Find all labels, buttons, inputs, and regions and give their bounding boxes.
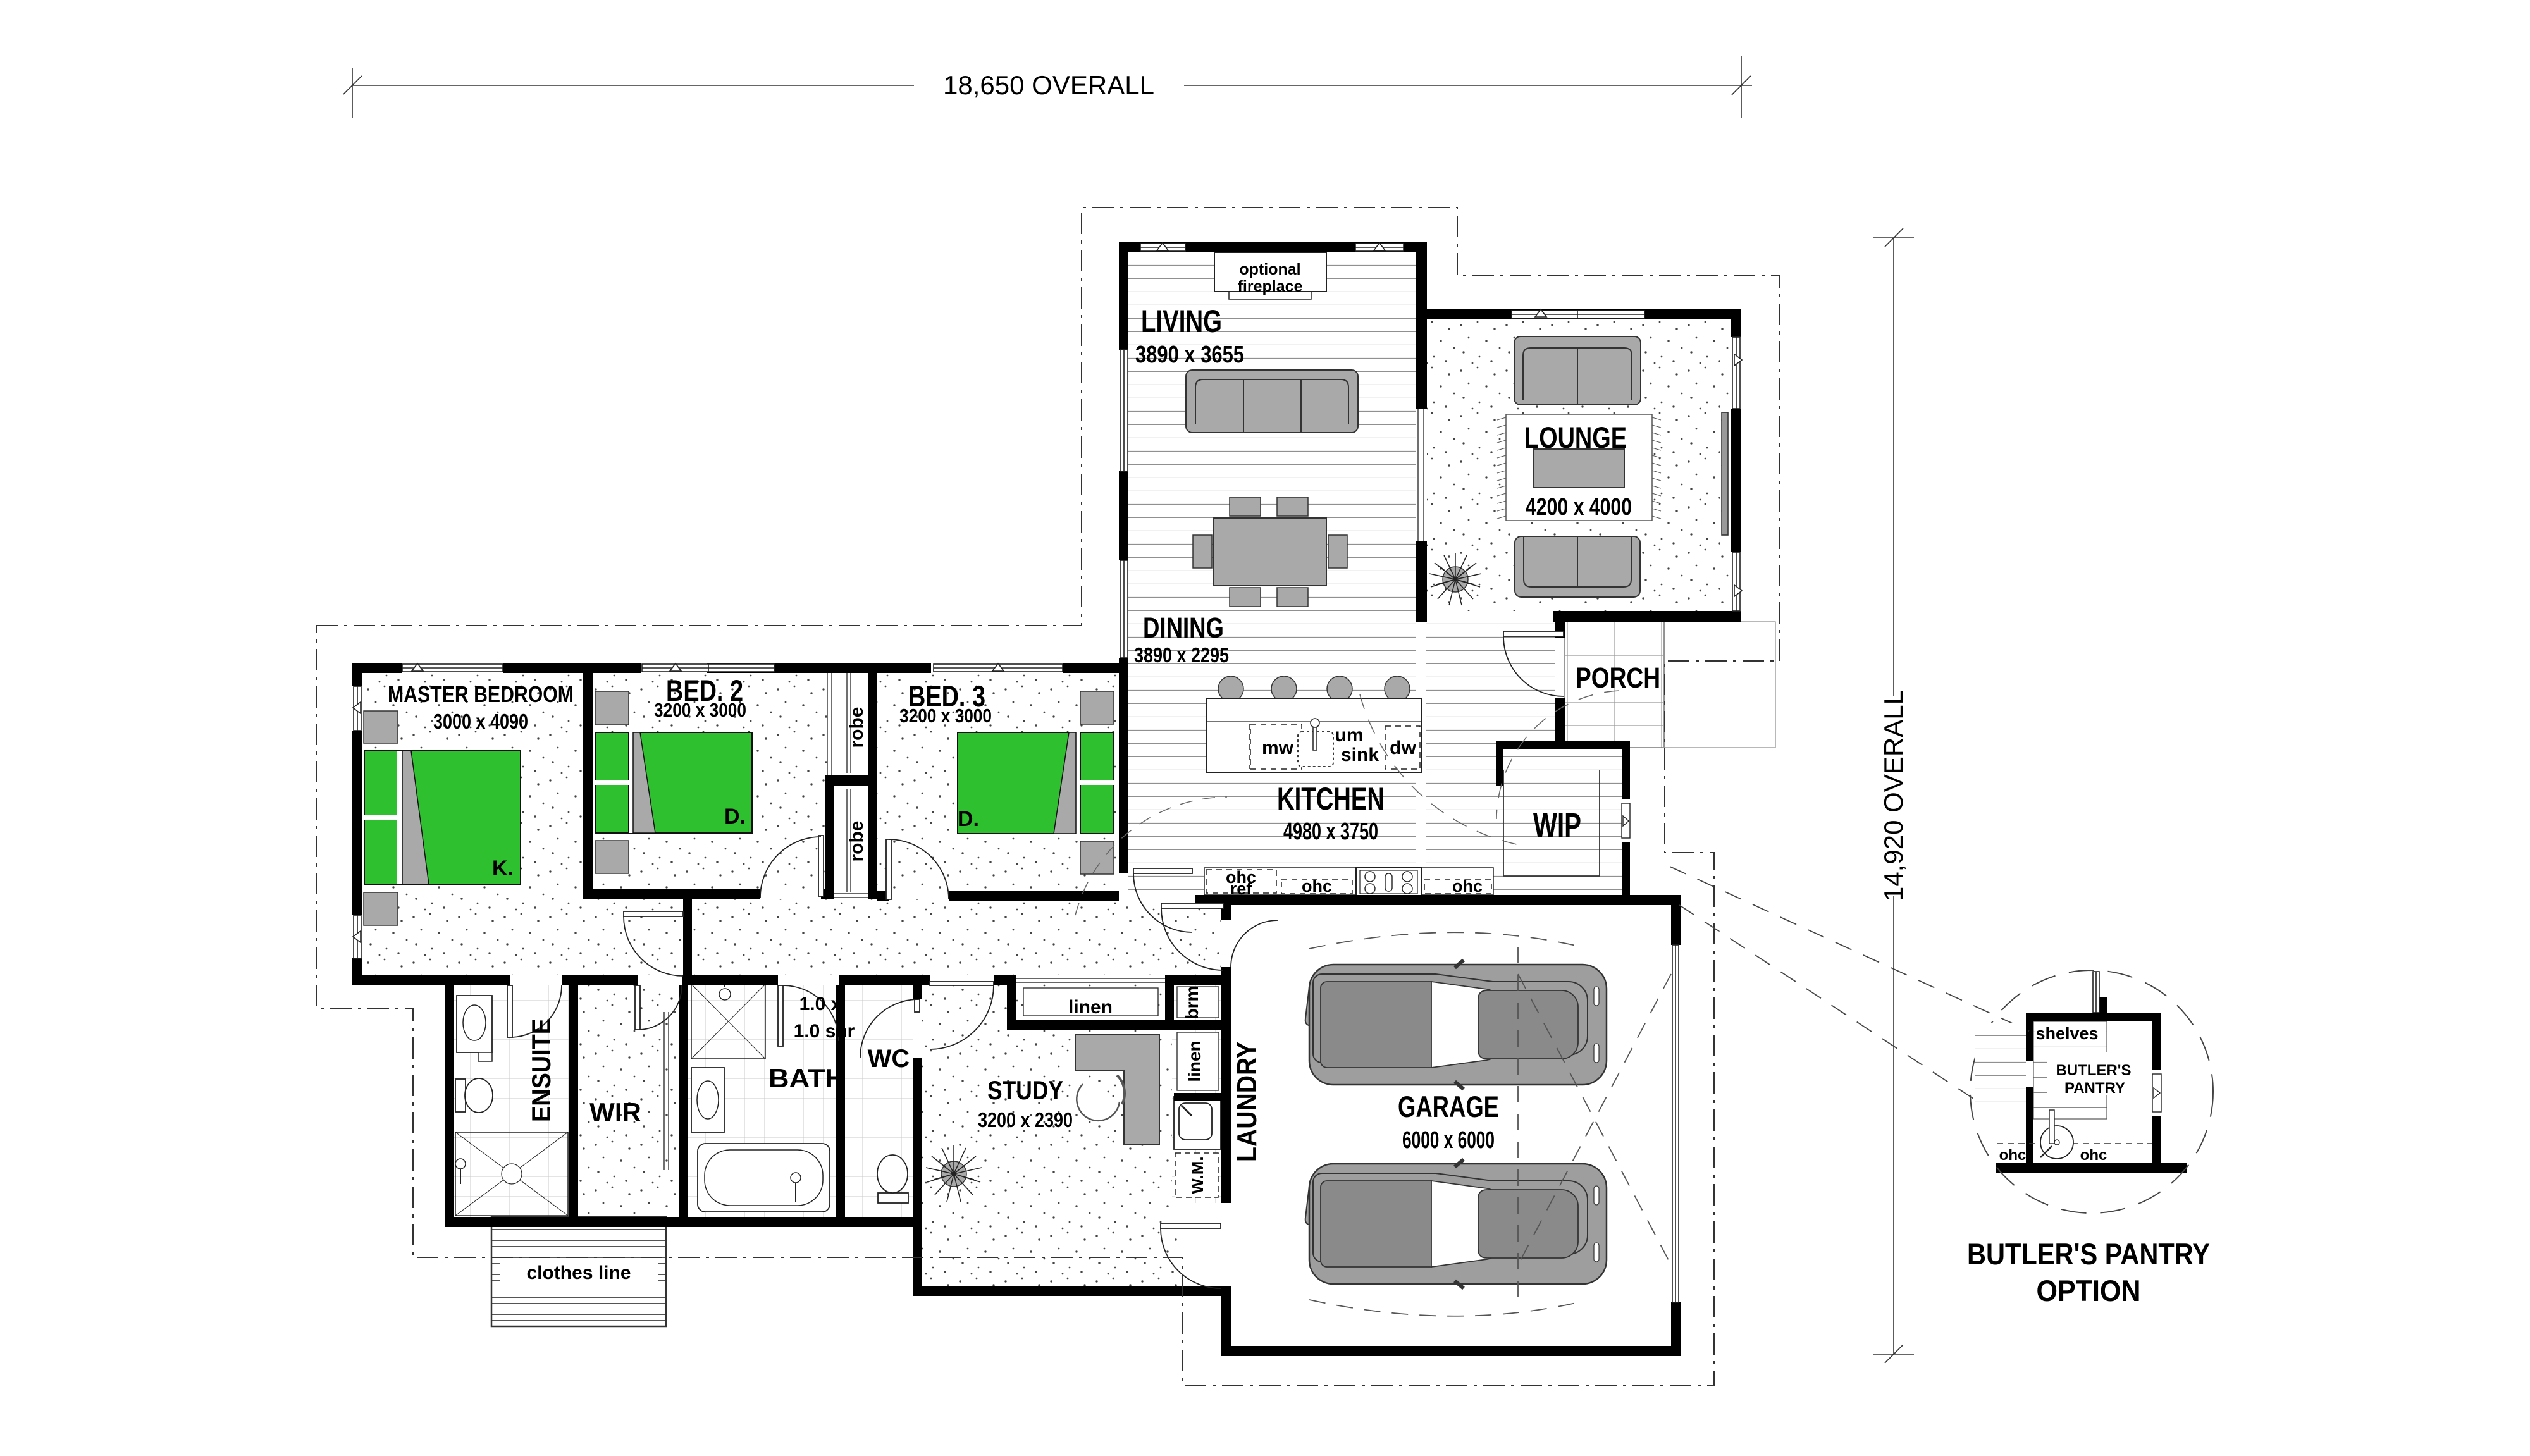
svg-text:WC: WC xyxy=(868,1045,910,1073)
svg-text:LOUNGE: LOUNGE xyxy=(1524,421,1627,454)
svg-text:PANTRY: PANTRY xyxy=(2064,1080,2125,1097)
svg-text:3890 x 3655: 3890 x 3655 xyxy=(1135,342,1244,368)
svg-text:PORCH: PORCH xyxy=(1576,662,1660,694)
svg-text:robe: robe xyxy=(846,820,867,861)
svg-text:ENSUITE: ENSUITE xyxy=(526,1018,556,1122)
svg-text:1.0 shr: 1.0 shr xyxy=(794,1021,855,1042)
svg-text:3200 x 2390: 3200 x 2390 xyxy=(978,1108,1073,1132)
svg-text:4980 x 3750: 4980 x 3750 xyxy=(1283,818,1378,845)
svg-text:WIP: WIP xyxy=(1533,806,1581,844)
svg-text:14,920 OVERALL: 14,920 OVERALL xyxy=(1879,690,1908,901)
svg-text:W.M.: W.M. xyxy=(1188,1156,1207,1194)
svg-text:um: um xyxy=(1335,725,1364,746)
svg-text:robe: robe xyxy=(846,706,867,748)
svg-text:ref: ref xyxy=(1230,879,1253,898)
svg-text:LIVING: LIVING xyxy=(1141,304,1222,339)
svg-text:3200 x 3000: 3200 x 3000 xyxy=(899,705,992,727)
svg-text:WIR: WIR xyxy=(589,1097,641,1127)
svg-text:BATH: BATH xyxy=(768,1063,846,1093)
svg-text:MASTER BEDROOM: MASTER BEDROOM xyxy=(388,681,574,707)
svg-text:BUTLER'S PANTRY: BUTLER'S PANTRY xyxy=(1967,1237,2210,1271)
svg-text:3890 x 2295: 3890 x 2295 xyxy=(1134,643,1229,667)
svg-text:STUDY: STUDY xyxy=(987,1075,1063,1105)
svg-text:D.: D. xyxy=(724,805,746,829)
svg-text:4200 x 4000: 4200 x 4000 xyxy=(1526,494,1632,521)
svg-text:18,650 OVERALL: 18,650 OVERALL xyxy=(943,70,1154,100)
svg-text:clothes line: clothes line xyxy=(526,1262,631,1283)
svg-text:fireplace: fireplace xyxy=(1238,278,1303,295)
svg-text:3000 x 4090: 3000 x 4090 xyxy=(433,710,528,733)
svg-text:ohc: ohc xyxy=(1302,877,1332,896)
svg-text:LAUNDRY: LAUNDRY xyxy=(1231,1042,1262,1162)
svg-text:dw: dw xyxy=(1390,737,1416,758)
svg-text:brm: brm xyxy=(1182,986,1202,1020)
svg-text:linen: linen xyxy=(1185,1040,1204,1082)
svg-text:linen: linen xyxy=(1068,997,1113,1018)
svg-text:DINING: DINING xyxy=(1143,612,1224,644)
svg-text:ohc: ohc xyxy=(2080,1147,2107,1164)
svg-text:GARAGE: GARAGE xyxy=(1398,1090,1499,1123)
svg-text:shelves: shelves xyxy=(2035,1024,2098,1043)
svg-text:BUTLER'S: BUTLER'S xyxy=(2056,1062,2131,1079)
svg-text:D.: D. xyxy=(958,807,979,831)
svg-text:KITCHEN: KITCHEN xyxy=(1277,781,1385,817)
svg-text:3200 x 3000: 3200 x 3000 xyxy=(654,699,746,721)
svg-text:ohc: ohc xyxy=(1999,1147,2027,1164)
svg-text:6000 x 6000: 6000 x 6000 xyxy=(1402,1127,1495,1154)
svg-text:optional: optional xyxy=(1239,261,1300,278)
svg-text:OPTION: OPTION xyxy=(2037,1274,2141,1307)
svg-text:ohc: ohc xyxy=(1452,877,1483,896)
svg-text:mw: mw xyxy=(1262,737,1294,758)
svg-text:sink: sink xyxy=(1341,744,1379,765)
svg-text:1.0 x: 1.0 x xyxy=(799,994,842,1015)
svg-text:K.: K. xyxy=(492,856,514,880)
